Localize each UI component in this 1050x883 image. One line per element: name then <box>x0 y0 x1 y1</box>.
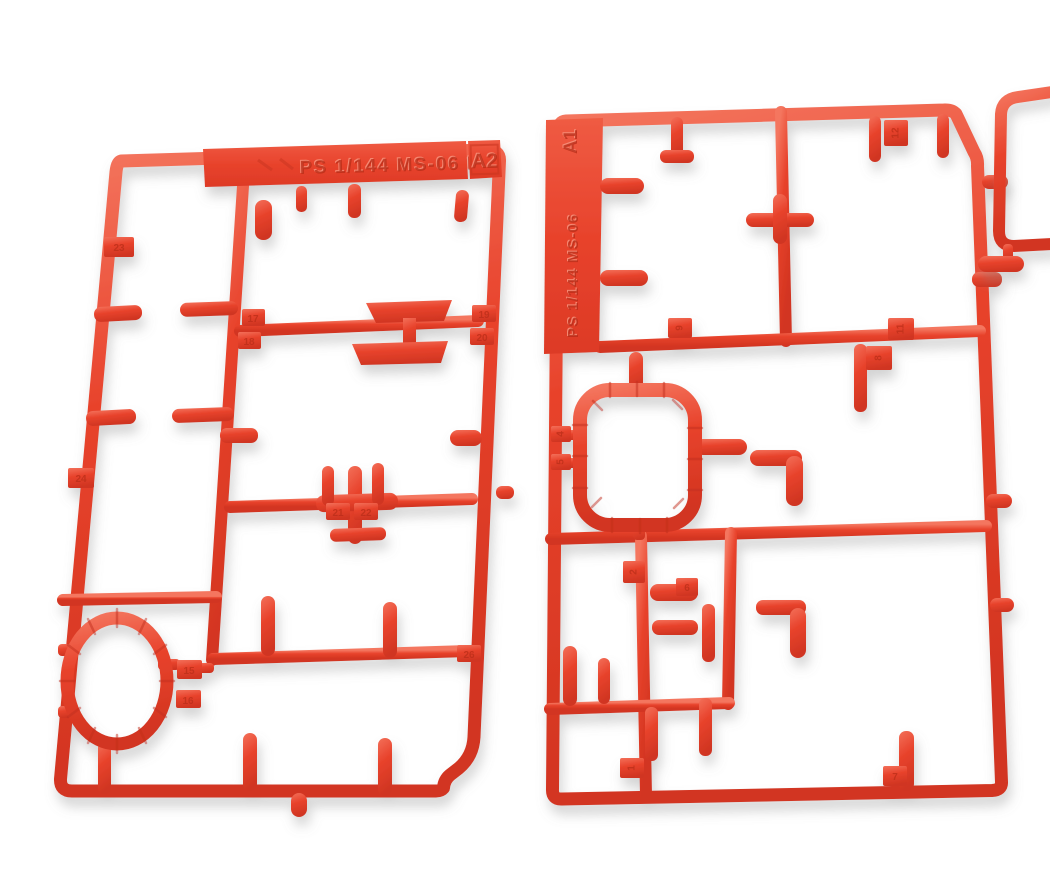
hook-leg <box>790 608 806 658</box>
part-number: 17 <box>247 314 259 325</box>
part-number: 1 <box>627 765 638 771</box>
peg-part <box>645 707 658 761</box>
part-number: 2 <box>629 569 640 575</box>
peg-part <box>869 116 881 162</box>
part-number: 4 <box>556 431 567 437</box>
part-number: 18 <box>243 337 255 348</box>
peg-part <box>937 114 949 158</box>
grade-code: A2 <box>471 150 498 174</box>
part-number: 19 <box>478 310 490 321</box>
part-number: 5 <box>556 459 567 465</box>
part-number: 6 <box>684 583 690 594</box>
t-peg-bar <box>660 150 694 163</box>
peg-part <box>563 646 577 706</box>
peg-part <box>291 793 307 817</box>
part-number: 26 <box>463 650 475 661</box>
peg-part <box>220 428 258 443</box>
peg-part <box>986 494 1012 508</box>
part-number: 23 <box>113 243 125 254</box>
peg-part <box>322 466 334 506</box>
part-number: 8 <box>874 355 885 361</box>
part-number: 24 <box>75 474 87 485</box>
runner-rail-horizontal <box>63 597 216 600</box>
anchor-stem <box>773 194 787 244</box>
part-number: 7 <box>892 772 898 783</box>
ibeam-bottom-flange <box>352 341 448 365</box>
peg-part <box>450 430 482 446</box>
peg-part <box>652 620 698 635</box>
peg-part <box>496 486 514 499</box>
part-number: 22 <box>360 508 372 519</box>
peg-part <box>372 463 384 505</box>
peg-part <box>261 596 275 656</box>
peg-part <box>94 305 143 322</box>
peg-part <box>854 344 867 412</box>
peg-part <box>699 698 712 756</box>
peg-part <box>348 184 361 218</box>
runner-rail-horizontal <box>213 651 468 659</box>
runner-rail-vertical <box>728 533 731 704</box>
peg-part <box>172 407 234 423</box>
peg-part <box>600 178 644 194</box>
part-number: 16 <box>182 696 194 707</box>
grade-code: A1 <box>561 129 582 154</box>
sprue-photo: PS 1/144 MS-06 F2 PS 1/144 MS-06 F2 A2 A… <box>0 0 1050 883</box>
peg-part <box>972 272 1002 287</box>
peg-part <box>86 409 137 427</box>
part-number: 15 <box>183 666 195 677</box>
peg-part <box>296 186 307 212</box>
part-number: 9 <box>675 325 686 331</box>
peg-part <box>378 738 392 796</box>
ring-gate <box>695 439 747 455</box>
photo-background: PS 1/144 MS-06 F2 PS 1/144 MS-06 F2 A2 A… <box>0 0 1050 883</box>
airplane-tail <box>330 527 386 542</box>
peg-part <box>383 602 397 658</box>
peg-part <box>990 598 1014 612</box>
part-number: 21 <box>332 508 344 519</box>
peg-part <box>702 604 715 662</box>
peg-part <box>978 256 1024 272</box>
part-number: 11 <box>896 323 907 334</box>
peg-part <box>243 733 257 791</box>
peg-part <box>598 658 610 704</box>
part-number: 20 <box>476 333 488 344</box>
hook-leg <box>786 456 803 506</box>
peg-part <box>180 301 238 317</box>
peg-part <box>600 270 648 286</box>
part-number: 12 <box>891 127 902 139</box>
peg-part <box>255 200 272 240</box>
sprue-marking: PS 1/144 MS-06 <box>565 214 582 338</box>
